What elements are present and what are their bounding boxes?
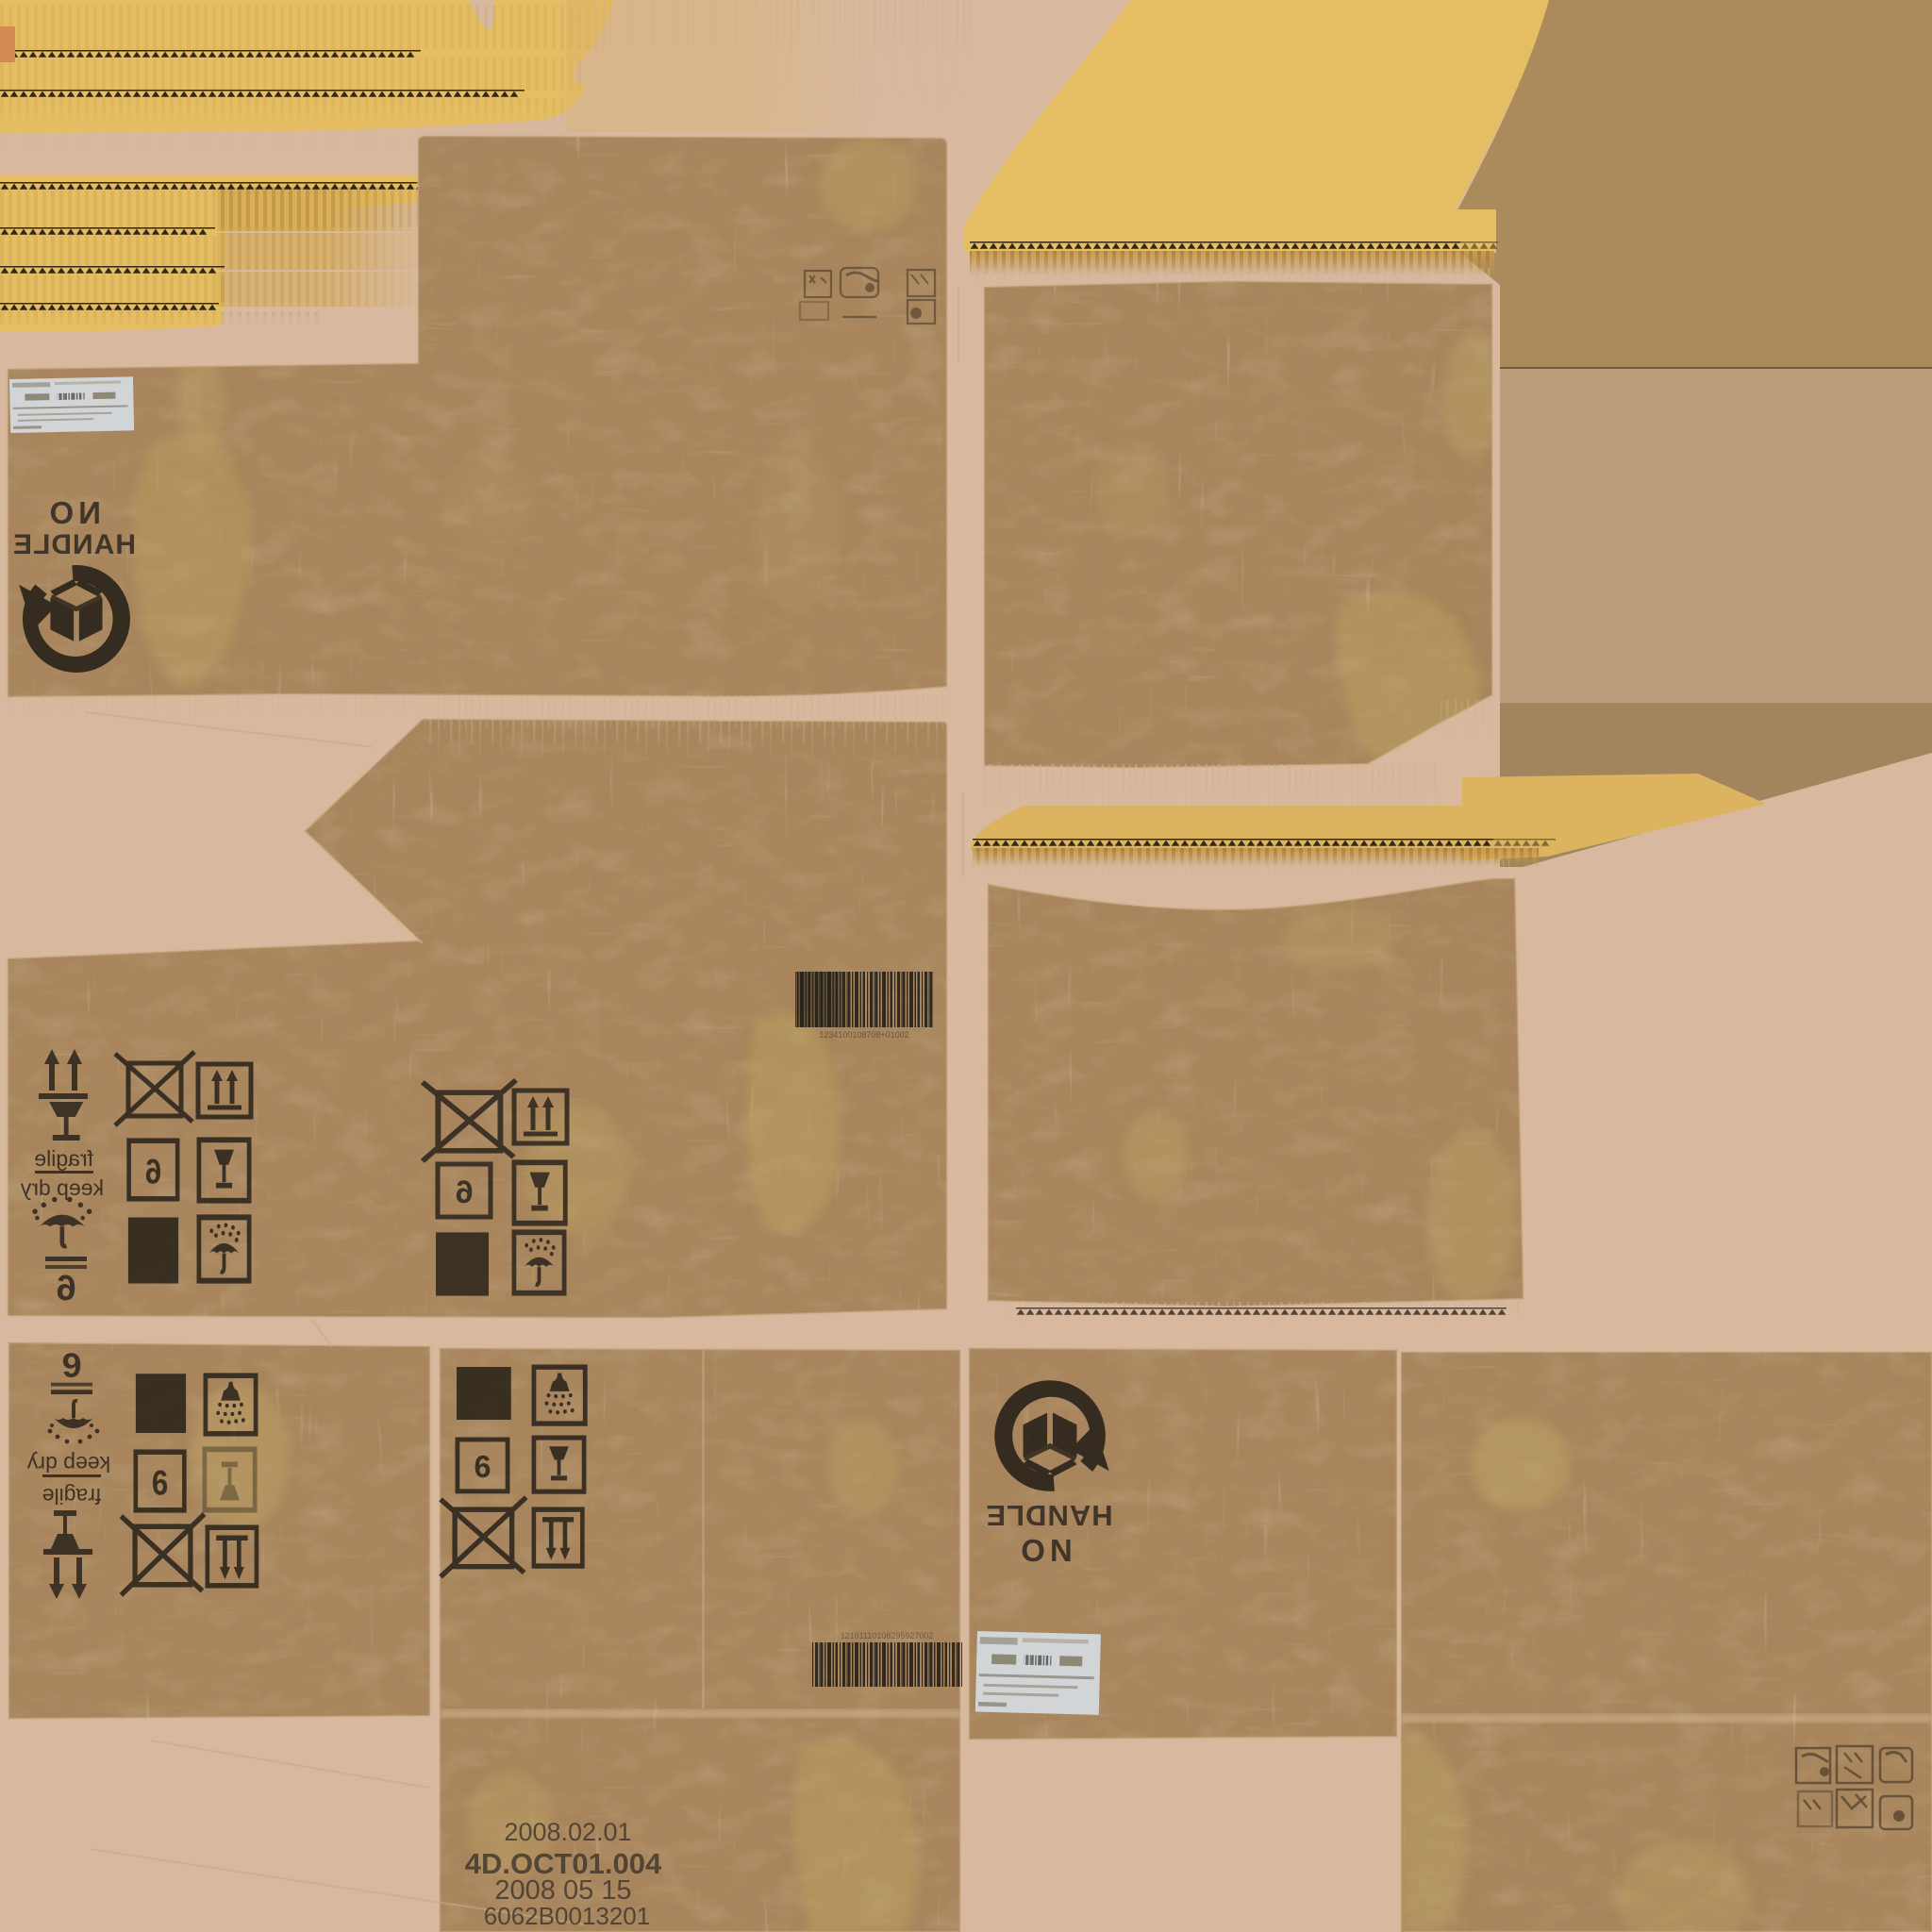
svg-text:fragile: fragile bbox=[34, 1146, 93, 1171]
svg-text:1234100108708+01002: 1234100108708+01002 bbox=[819, 1030, 908, 1040]
svg-text:HANDLE: HANDLE bbox=[12, 529, 136, 560]
svg-text:NO: NO bbox=[1016, 1533, 1073, 1568]
svg-text:fragile: fragile bbox=[42, 1484, 102, 1508]
svg-text:2008.02.01: 2008.02.01 bbox=[504, 1818, 631, 1846]
svg-text:NO: NO bbox=[45, 495, 102, 530]
svg-text:6062B0013201: 6062B0013201 bbox=[484, 1902, 650, 1930]
svg-text:keep dry: keep dry bbox=[20, 1175, 104, 1200]
svg-text:keep dry: keep dry bbox=[26, 1452, 110, 1476]
svg-text:HANDLE: HANDLE bbox=[985, 1499, 1112, 1532]
svg-text:12101110108295927002: 12101110108295927002 bbox=[841, 1631, 934, 1641]
